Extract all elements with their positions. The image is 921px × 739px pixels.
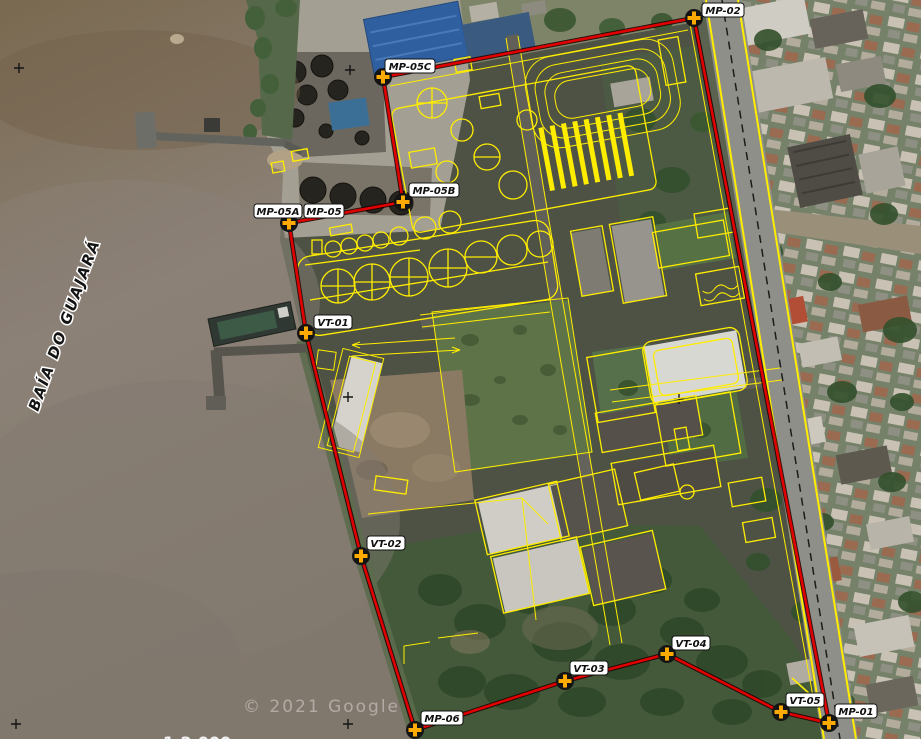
svg-text:VT-01: VT-01 [317, 318, 348, 329]
marker-label-mp-05: MP-05 [304, 204, 344, 218]
marker-label-vt-01: VT-01 [314, 315, 352, 329]
marker-label-mp-05c: MP-05C [385, 59, 435, 73]
marker-label-vt-05: VT-05 [786, 693, 824, 707]
google-watermark: © 2021 Google [243, 697, 400, 717]
survey-marker-vt-02[interactable] [352, 547, 370, 565]
svg-text:MP-01: MP-01 [838, 707, 873, 718]
svg-text:VT-04: VT-04 [675, 639, 706, 650]
svg-text:MP-05: MP-05 [306, 207, 341, 218]
map-canvas: MP-02 MP-05C MP-05B MP-05A MP-05 VT-01 V… [0, 0, 921, 739]
svg-text:MP-05B: MP-05B [413, 186, 456, 197]
satellite-map-viewport[interactable]: MP-02 MP-05C MP-05B MP-05A MP-05 VT-01 V… [0, 0, 921, 739]
svg-text:VT-05: VT-05 [789, 696, 820, 707]
svg-text:MP-05C: MP-05C [389, 62, 432, 73]
survey-marker-mp-02[interactable] [685, 9, 703, 27]
svg-text:MP-02: MP-02 [705, 6, 740, 17]
pier-end-platform [135, 111, 157, 148]
marker-label-mp-05a: MP-05A [254, 204, 302, 218]
scale-label: 1:2.000 [163, 733, 231, 739]
marker-label-vt-04: VT-04 [672, 636, 710, 650]
small-boat [170, 34, 184, 44]
svg-text:VT-03: VT-03 [573, 664, 604, 675]
svg-text:VT-02: VT-02 [370, 539, 401, 550]
svg-text:MP-05A: MP-05A [257, 207, 300, 218]
marker-label-vt-03: VT-03 [570, 661, 608, 675]
marker-label-mp-05b: MP-05B [409, 183, 459, 197]
marker-label-mp-02: MP-02 [702, 3, 744, 17]
marker-label-vt-02: VT-02 [367, 536, 405, 550]
marker-label-mp-06: MP-06 [421, 711, 463, 725]
survey-marker-vt-01[interactable] [297, 324, 315, 342]
svg-text:MP-06: MP-06 [424, 714, 459, 725]
marker-label-mp-01: MP-01 [835, 704, 877, 718]
